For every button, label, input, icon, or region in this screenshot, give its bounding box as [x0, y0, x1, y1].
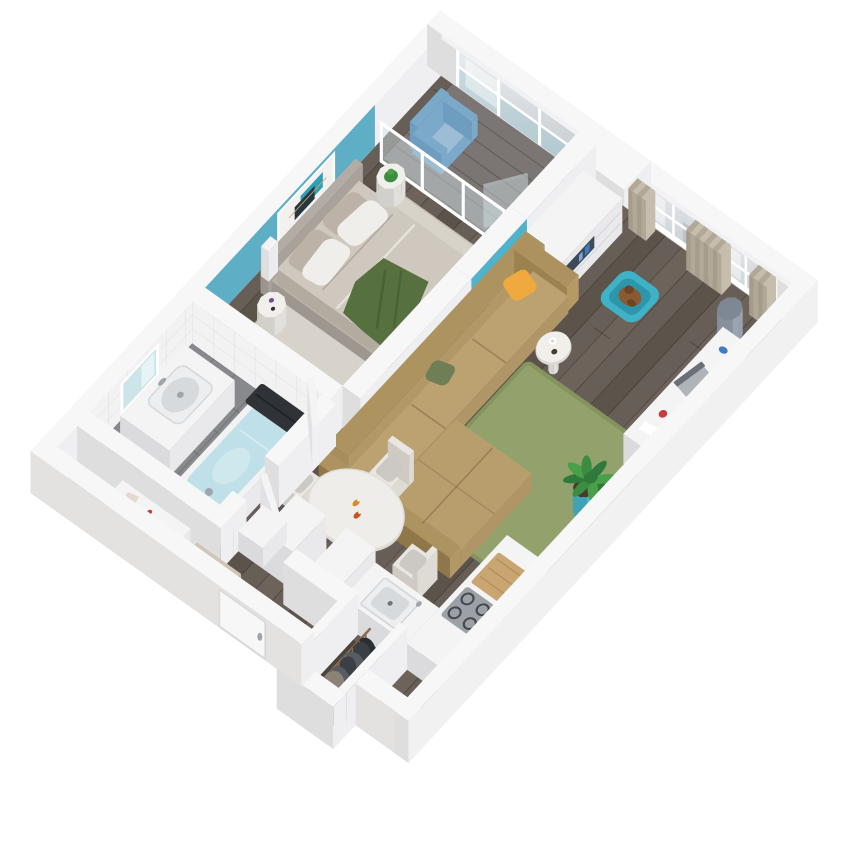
apartment-3d-floorplan — [0, 0, 850, 850]
tub-faucet — [205, 488, 213, 496]
floorplan-scene — [0, 0, 850, 850]
